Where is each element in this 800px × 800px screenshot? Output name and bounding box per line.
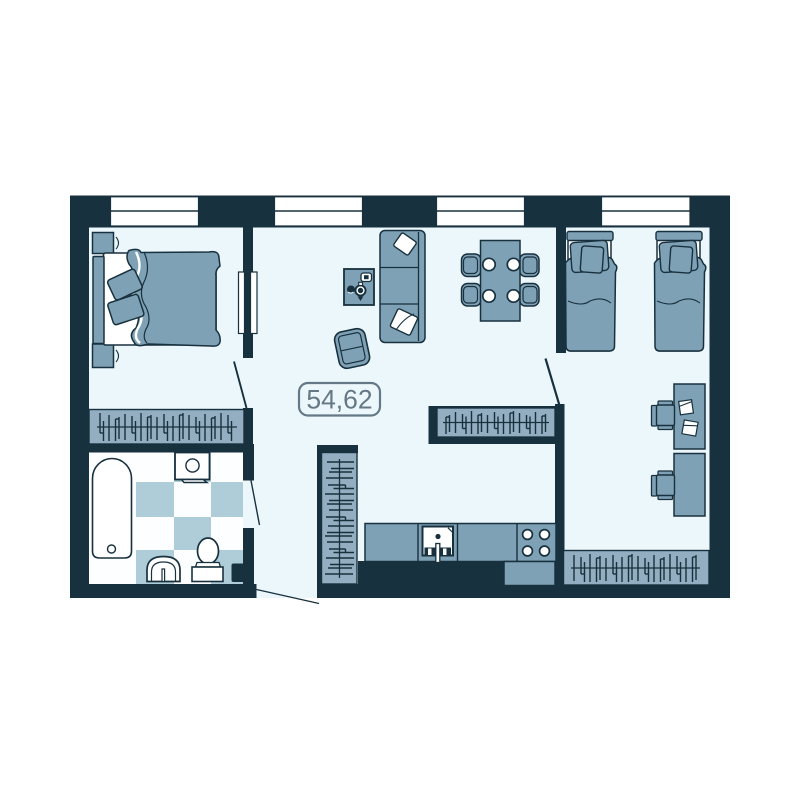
svg-text:54,62: 54,62 [306, 385, 372, 415]
